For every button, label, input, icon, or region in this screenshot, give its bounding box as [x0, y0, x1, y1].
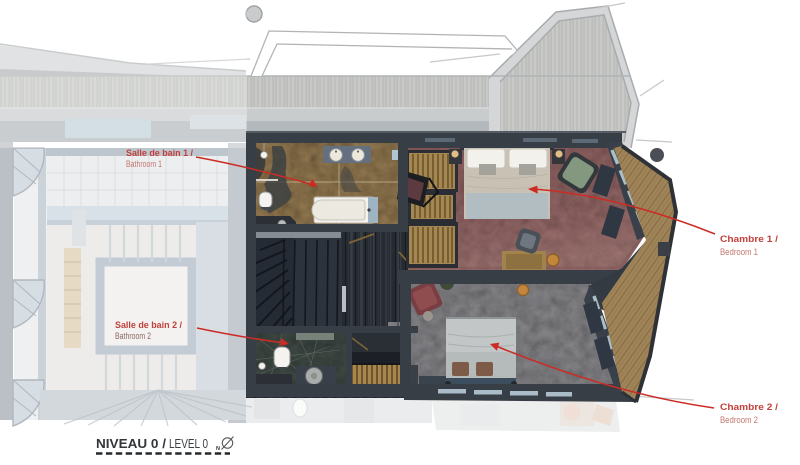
svg-text:Chambre 2 /: Chambre 2 / [720, 402, 778, 413]
svg-text:NIVEAU 0 /: NIVEAU 0 / [96, 436, 166, 451]
svg-text:Bathroom 1: Bathroom 1 [126, 159, 162, 170]
svg-text:Salle de bain 1 /: Salle de bain 1 / [126, 148, 193, 159]
svg-text:LEVEL 0: LEVEL 0 [169, 436, 208, 451]
svg-text:Chambre 1 /: Chambre 1 / [720, 234, 778, 245]
svg-text:Bedroom 2: Bedroom 2 [720, 415, 758, 426]
svg-text:Bedroom 1: Bedroom 1 [720, 247, 758, 258]
svg-text:N: N [216, 446, 220, 452]
svg-text:Bathroom 2: Bathroom 2 [115, 331, 151, 342]
svg-text:Salle de bain 2 /: Salle de bain 2 / [115, 320, 182, 331]
